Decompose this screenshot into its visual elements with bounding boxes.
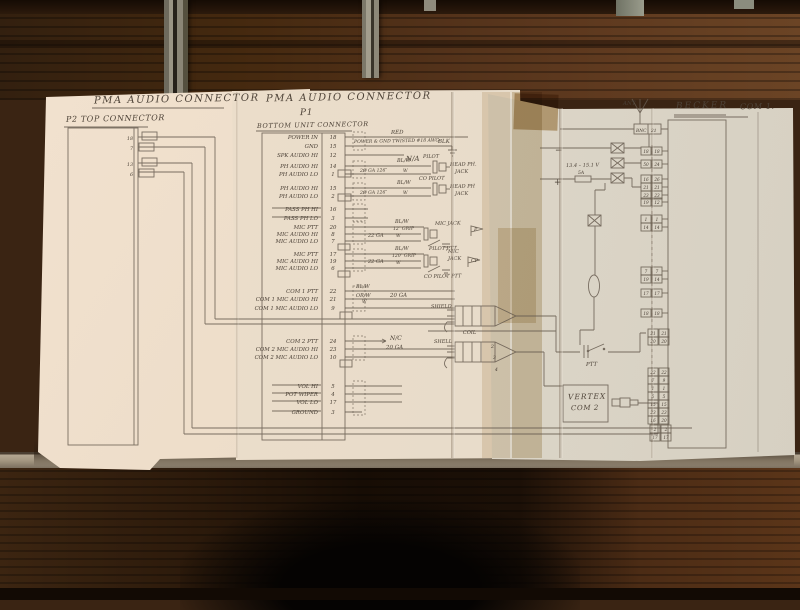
pin-cell-number: 24 <box>653 162 660 167</box>
p1-row-label: COM 1 MIC AUDIO HI <box>256 297 319 303</box>
p1-pin-number: 2 <box>330 194 335 200</box>
pin-cell-number: 14 <box>643 225 649 230</box>
becker-unit-box <box>668 120 726 448</box>
p1-designator: P1 <box>300 108 313 118</box>
wire-label: 22 GA <box>367 259 384 265</box>
p1-row-label: COM 2 MIC AUDIO HI <box>256 347 319 353</box>
pin-cell-number: 2 <box>664 427 668 432</box>
pin-cell-number: 23 <box>653 193 660 198</box>
pin-cell-number: 18 <box>654 311 660 316</box>
wire-label: MIC JACK <box>434 221 461 227</box>
becker-title: BECKER <box>676 101 728 112</box>
p1-pin-number: 17 <box>330 252 337 258</box>
wire-label: JACK <box>454 169 469 175</box>
wire-label: PTT <box>585 362 598 368</box>
pin-cell-number: 15 <box>661 402 667 407</box>
p1-pin-number: 4 <box>330 392 335 398</box>
paper-crease <box>651 108 654 458</box>
p1-row-label: COM 2 PTT <box>286 339 318 345</box>
p1-row-label: COM 1 MIC AUDIO LO <box>255 306 319 312</box>
pin-cell-number: 21 <box>660 331 666 336</box>
vertex-label: VERTEX <box>568 392 606 402</box>
pin-cell-number: 23 <box>642 193 649 198</box>
p2-connector-box <box>68 128 138 445</box>
pin-cell-number: 22 <box>660 370 667 375</box>
wire-label: 20 GA <box>389 293 407 299</box>
p1-pin-number: 3 <box>331 216 335 222</box>
p1-pin-number: 10 <box>330 355 337 361</box>
pin-cell-number: 19 <box>643 277 649 282</box>
p1-row-label: COM 1 PTT <box>286 289 318 295</box>
pin-cell-number: 5 <box>663 394 666 399</box>
ptt-switch-icon <box>584 344 605 358</box>
p1-pin-number: 7 <box>331 239 335 245</box>
pin-cell-number: 26 <box>653 177 660 182</box>
wire-label: COIL <box>463 330 477 336</box>
wire-label: ANT <box>622 101 636 107</box>
pin-cell-number: 1 <box>663 386 666 391</box>
p1-pin-number: 8 <box>331 232 335 238</box>
p1-pin-number: 15 <box>330 186 337 192</box>
crossed-box-symbol <box>588 143 624 226</box>
pin-cell-number: 21 <box>642 185 648 190</box>
p1-pin-number: 12 <box>330 153 337 159</box>
pin-cell-number: 7 <box>645 269 648 274</box>
p1-pin-number: 22 <box>329 289 337 295</box>
vertex-com2-label: COM 2 <box>571 404 599 412</box>
p1-row-label: MIC PTT <box>293 225 319 231</box>
becker-com-label: COM 1. <box>740 102 775 112</box>
pin-cell-number: 1 <box>656 217 659 222</box>
photo-of-schematic: { "titles": { "pma_p2_title": "PMA AUDIO… <box>0 0 800 600</box>
pin-cell-number: 20 <box>660 339 667 344</box>
p1-row-label: MIC AUDIO HI <box>276 259 319 265</box>
wire-label: BL/W <box>355 284 371 290</box>
pin-cell-number: 16 <box>643 177 649 182</box>
pin-cell-number: 20 <box>660 418 667 423</box>
p1-row-label: POWER IN <box>287 135 318 141</box>
wire-label: 5A <box>578 170 585 176</box>
wire-label: BNC <box>635 129 647 134</box>
wire-label: 12″ GRIP <box>393 226 415 232</box>
wire-label: 20 GA <box>385 345 403 351</box>
p1-row-label: PH AUDIO HI <box>279 164 319 170</box>
wire-label: 2Ø GA 126″ <box>359 189 387 196</box>
p1-pin-number: 24 <box>329 339 337 345</box>
mic-jack-icon <box>424 228 450 276</box>
wire-label: BL/W <box>394 246 410 252</box>
p1-row-label: MIC AUDIO HI <box>276 232 319 238</box>
wire-label: 2 <box>490 344 494 350</box>
becker-pin-pairs: 1818502416262121232319121114147719141717… <box>641 147 671 441</box>
wire-label: 2Ø GA 126″ <box>359 167 387 174</box>
wire-label: 13.4 – 15.1 V <box>566 162 601 169</box>
pin-cell-number: 18 <box>643 149 649 154</box>
com1-plug-icon <box>445 306 517 332</box>
pin-cell-number: 19 <box>643 200 649 205</box>
paper-crease <box>451 92 455 458</box>
p1-row-label: PH AUDIO LO <box>278 194 319 200</box>
paper-crease <box>559 108 563 458</box>
p1-pin-number: 16 <box>330 207 337 213</box>
wire-label: CO PILOT <box>419 176 445 182</box>
wire-label: 3 <box>493 355 496 361</box>
p1-row-label: MIC AUDIO LO <box>274 266 318 272</box>
lamp-symbol <box>589 275 600 297</box>
pin-cell-number: 17 <box>663 435 669 440</box>
p1-pin-number: 1 <box>331 172 334 178</box>
wire-label: W <box>403 168 409 174</box>
wire-label: BL/W <box>396 158 412 164</box>
wire-label: 4 <box>494 367 498 373</box>
p1-row-label: PH AUDIO HI <box>279 186 319 192</box>
com2-plug-icon <box>445 342 517 368</box>
pin-cell-number: 17 <box>643 291 649 296</box>
p2-pin-number: 13 <box>127 162 133 168</box>
p1-pin-number: 9 <box>331 306 335 312</box>
wire-label: N/C <box>389 335 402 342</box>
pin-cell-number: 7 <box>656 269 659 274</box>
p1-row-label: SPK AUDIO HI <box>277 153 319 159</box>
p2-pin-number: 6 <box>130 172 133 178</box>
pin-cell-number: 21 <box>653 185 659 190</box>
wire-label: 120″ GRIP <box>392 253 417 259</box>
wire-label: POWER & GND TWISTED #18 AWG <box>353 138 440 146</box>
wire-labels: REDPOWER & GND TWISTED #18 AWGBLKN/ABL/W… <box>353 101 657 373</box>
schematic-drawing: 187136 POWER IN18GND15SPK AUDIO HI12PH A… <box>0 0 800 600</box>
p2-pin-number: 7 <box>130 146 134 152</box>
wire-label: W <box>403 190 409 196</box>
wire-label: 22 GA <box>367 233 384 239</box>
p1-pin-number: 23 <box>329 347 337 353</box>
wire-label: SHIELD <box>431 304 452 310</box>
p1-pin-number: 14 <box>330 164 337 170</box>
p1-row-label: GND <box>305 144 319 150</box>
p1-pin-number: 6 <box>331 266 335 272</box>
wire-label: OR/W <box>356 293 372 299</box>
p1-pin-number: 3 <box>331 410 335 416</box>
wire-label: BL/W <box>396 180 412 186</box>
pin-cell-number: 12 <box>654 200 660 205</box>
pin-cell-number: 9 <box>663 378 666 383</box>
p1-row-label: MIC PTT <box>293 252 319 258</box>
p1-pin-number: 18 <box>330 135 337 141</box>
wire-label: JACK <box>454 191 469 197</box>
wire-label: RED <box>390 130 404 136</box>
p2-pin-numbers: 187136 <box>127 136 134 178</box>
p1-row-label: MIC AUDIO LO <box>274 239 318 245</box>
pin-cell-number: 14 <box>654 277 660 282</box>
p1-pin-number: 5 <box>331 384 335 390</box>
fuse-symbol <box>575 176 591 182</box>
wire-label: SHELL <box>434 339 453 345</box>
pin-cell-number: 1 <box>645 217 648 222</box>
p2-pin-number: 18 <box>127 136 133 142</box>
paper-crease <box>236 92 239 458</box>
p1-pin-number: 19 <box>330 259 337 265</box>
p1-pin-number: 20 <box>329 225 337 231</box>
wire-label: PILOT <box>422 154 440 160</box>
flag-letter: CP <box>471 258 479 264</box>
wire-label: BL/W <box>394 219 410 225</box>
pin-cell-number: 23 <box>660 410 667 415</box>
pin-cell-number: 50 <box>643 162 649 167</box>
p1-pin-number: 17 <box>330 400 337 406</box>
pin-cell-number: 18 <box>654 149 660 154</box>
wire-label: W <box>362 299 368 305</box>
wire-label: CO PILOT PTT <box>424 273 462 280</box>
pin-cell-number: 17 <box>654 291 660 296</box>
pin-cell-number: 14 <box>654 225 660 230</box>
pin-cell-number: 18 <box>643 311 649 316</box>
wire-label: BLK <box>437 139 451 145</box>
p1-row-label: PH AUDIO LO <box>278 172 319 178</box>
p1-row-label: COM 2 MIC AUDIO LO <box>255 355 319 361</box>
flag-markers: PCP <box>468 226 483 267</box>
p1-pin-number: 21 <box>329 297 337 303</box>
p1-pin-number: 15 <box>330 144 337 150</box>
p2-subtitle: P2 TOP CONNECTOR <box>66 113 165 124</box>
